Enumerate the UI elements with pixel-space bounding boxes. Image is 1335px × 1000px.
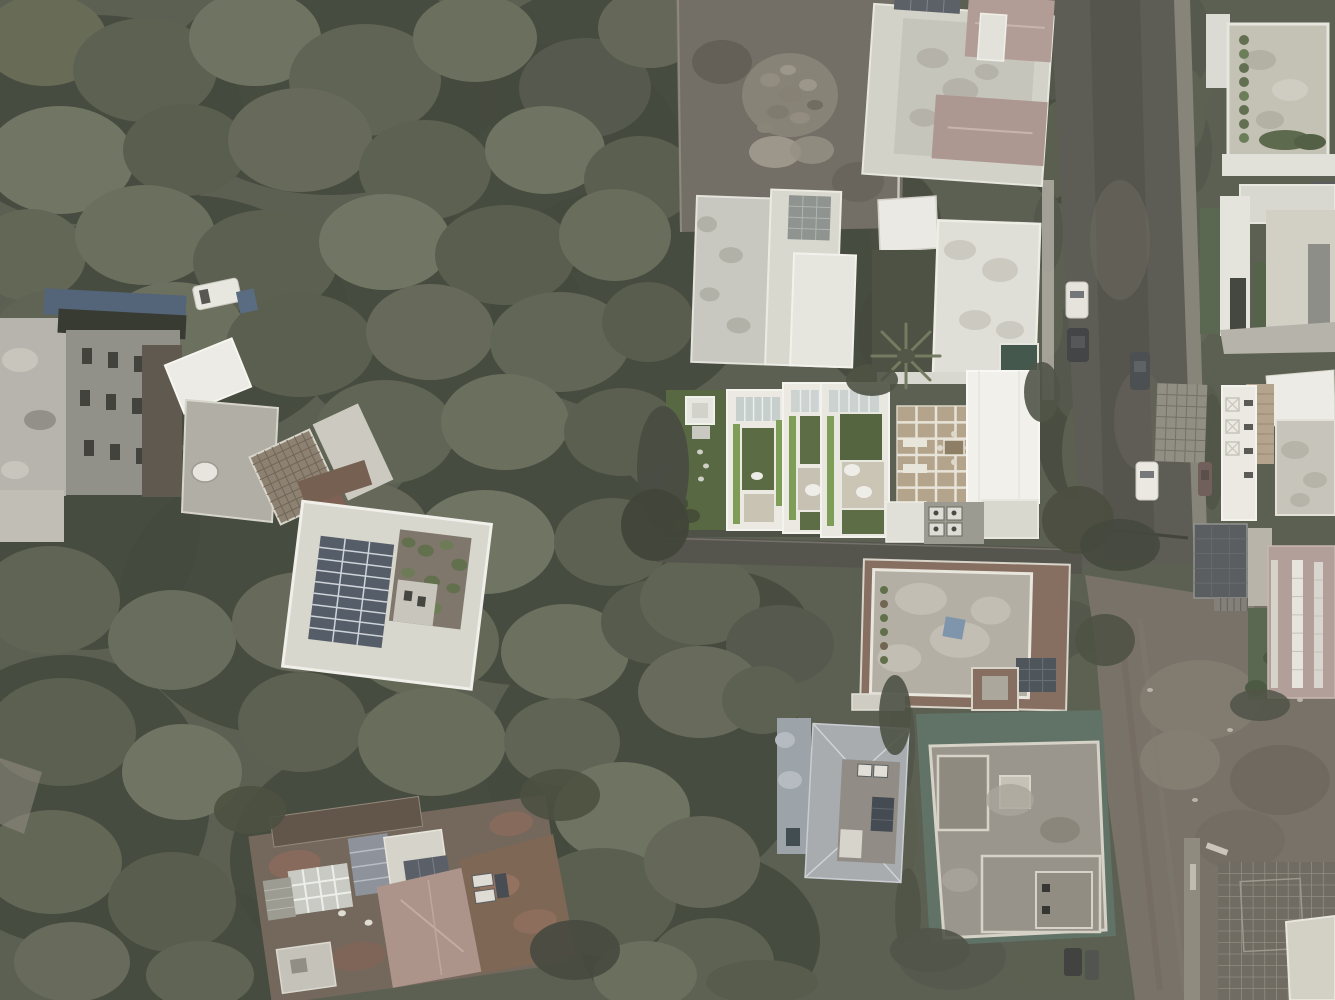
aerial-scene — [0, 0, 1335, 1000]
atmosphere — [0, 0, 1335, 1000]
haze-overlay — [0, 0, 1335, 1000]
aerial-photo — [0, 0, 1335, 1000]
